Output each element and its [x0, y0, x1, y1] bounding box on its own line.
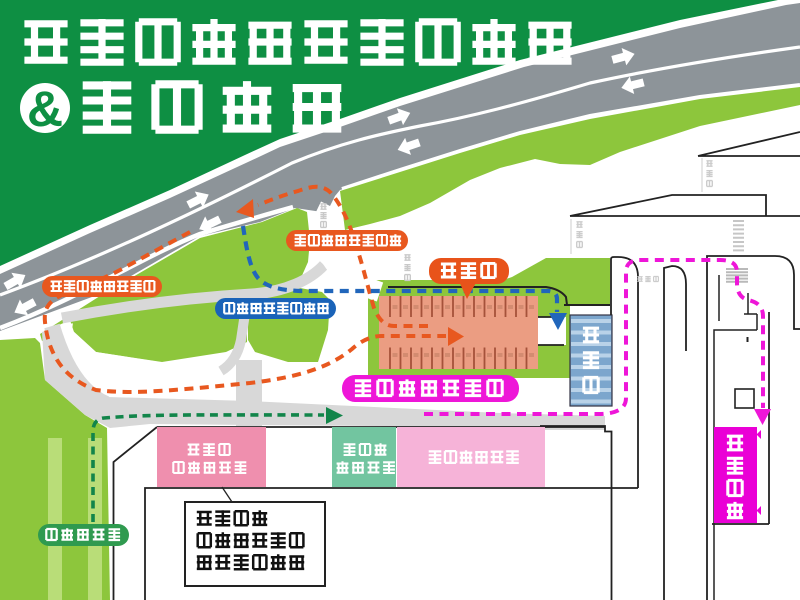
svg-text:&: &: [27, 81, 63, 137]
